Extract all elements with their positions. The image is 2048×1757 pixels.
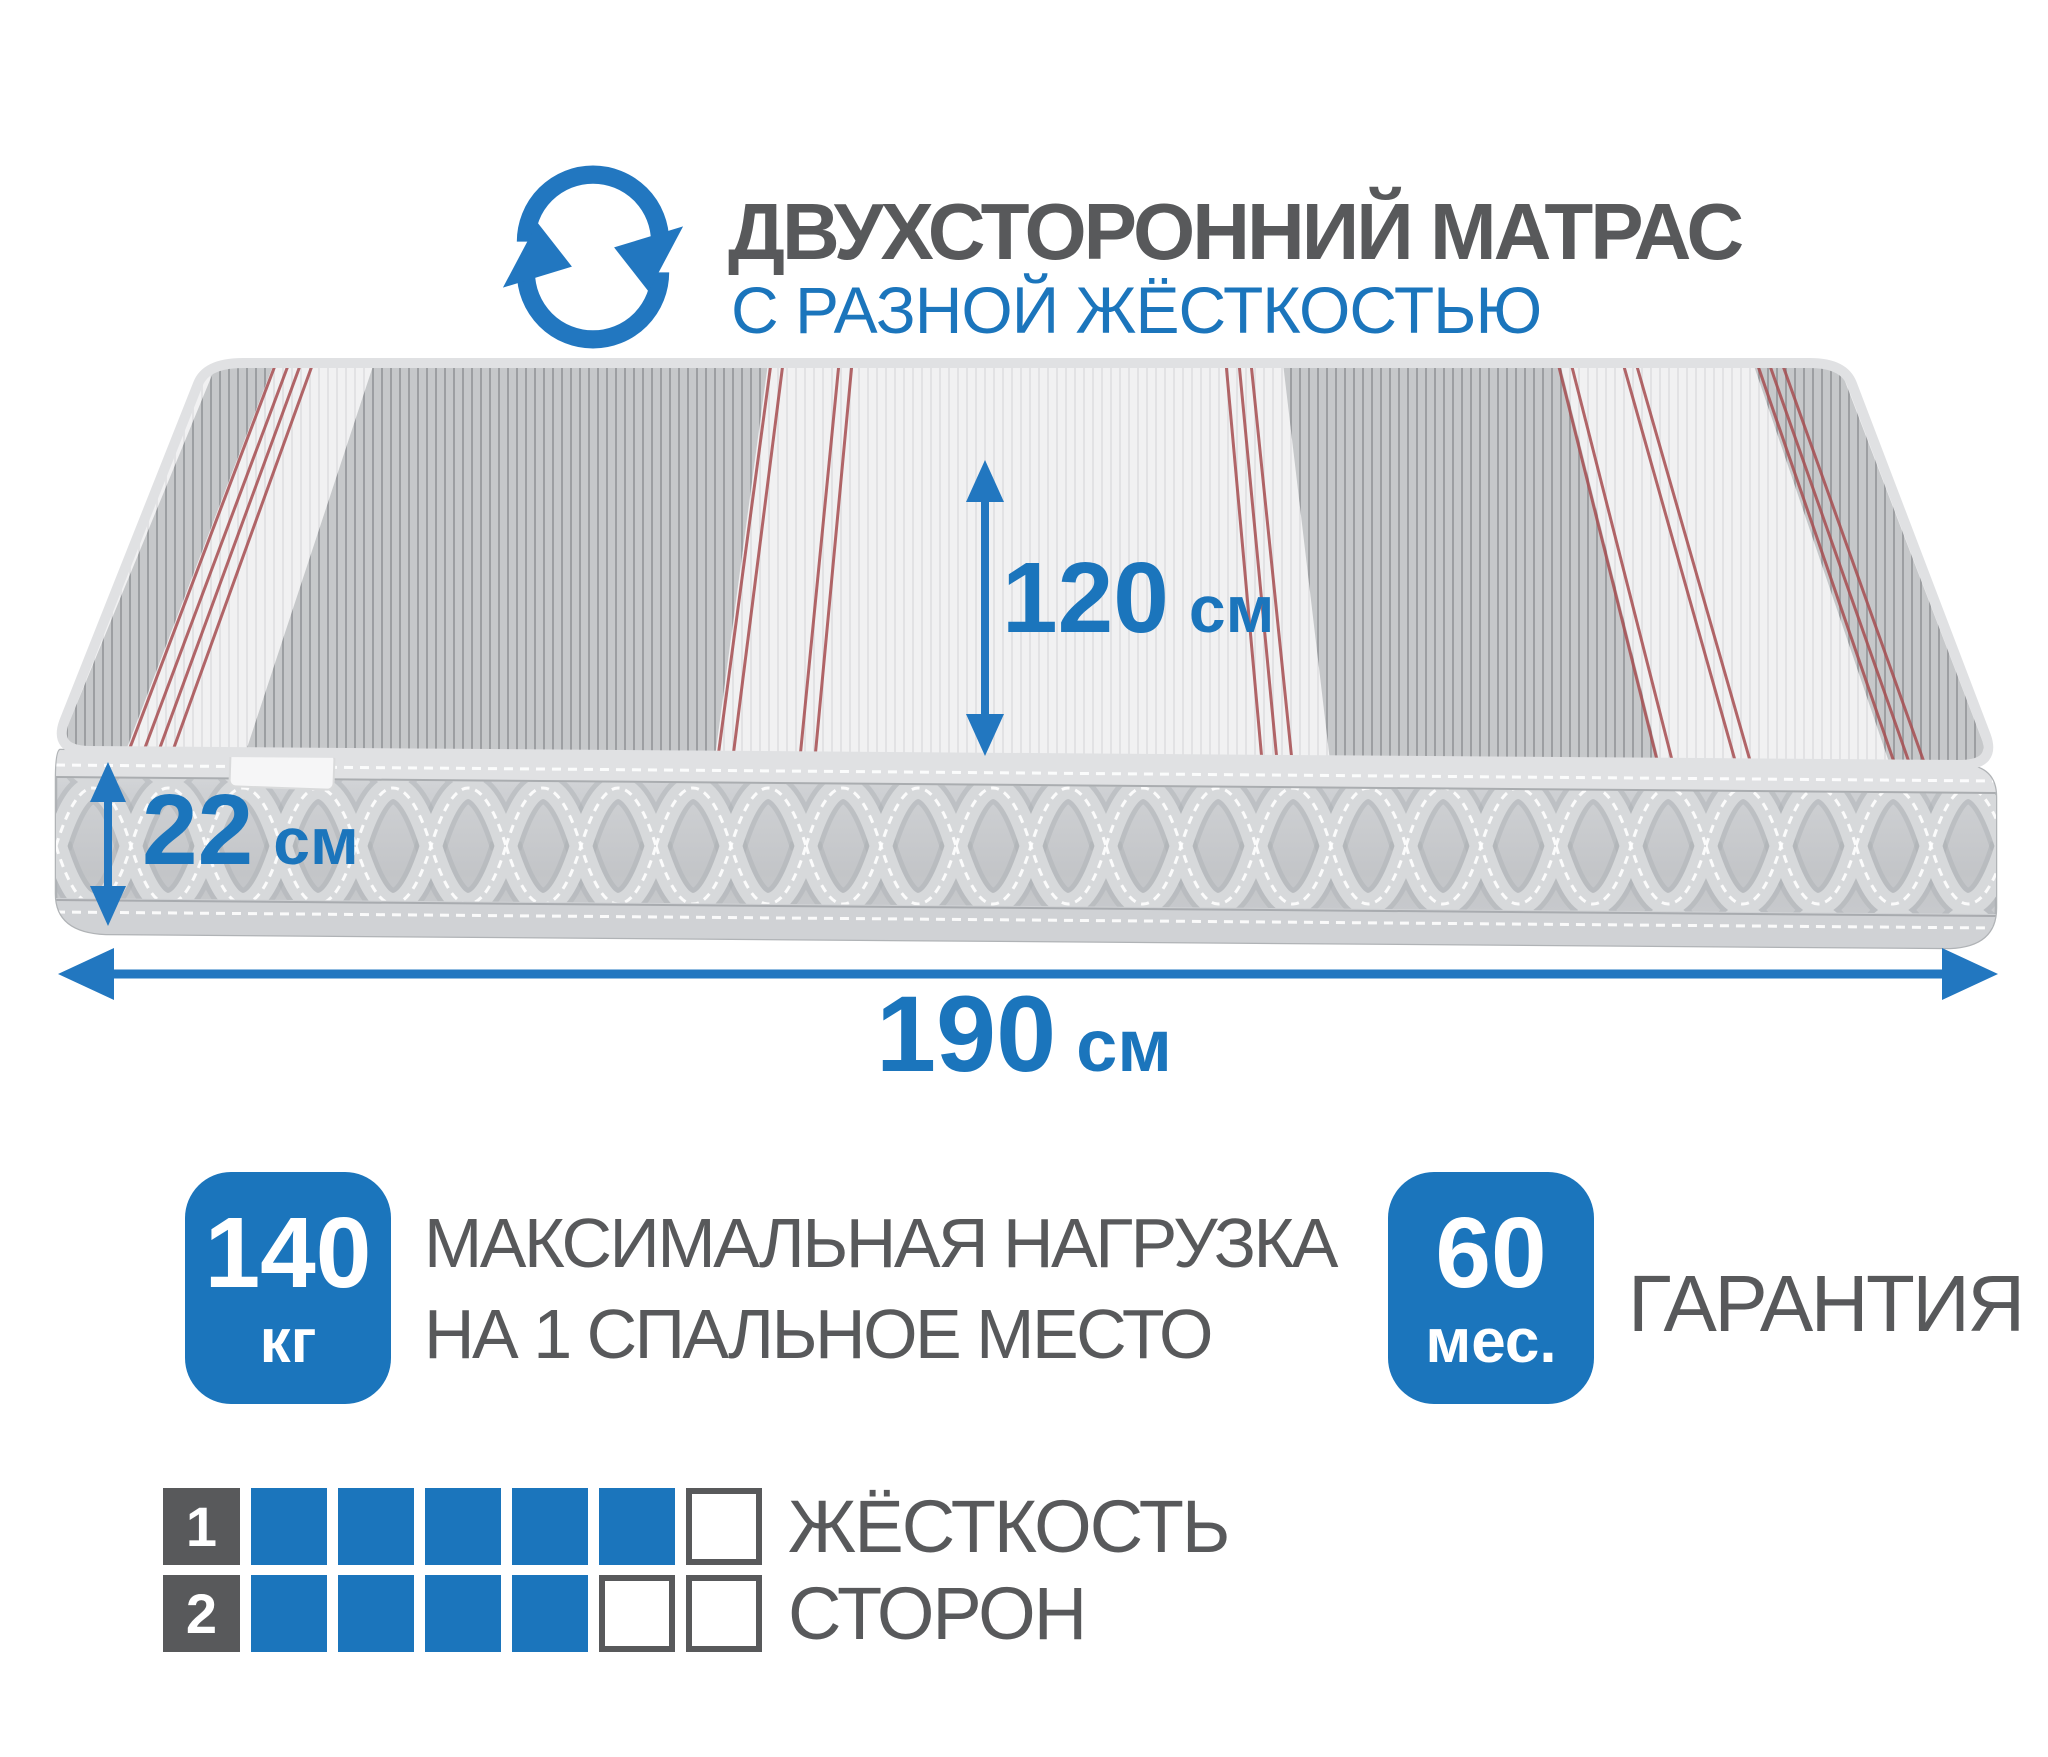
max-load-label: МАКСИМАЛЬНАЯ НАГРУЗКА НА 1 СПАЛЬНОЕ МЕСТ… <box>424 1198 1336 1380</box>
max-load-label-line2: НА 1 СПАЛЬНОЕ МЕСТО <box>424 1289 1336 1380</box>
max-load-label-line1: МАКСИМАЛЬНАЯ НАГРУЗКА <box>424 1198 1336 1289</box>
warranty-label: ГАРАНТИЯ <box>1628 1252 2023 1356</box>
height-dimension-arrow <box>90 762 126 926</box>
hardness-square-filled <box>425 1488 501 1565</box>
rotate-arrows-icon <box>478 142 708 372</box>
hardness-row-2-index: 2 <box>163 1575 240 1652</box>
hardness-square-filled <box>599 1488 675 1565</box>
length-dimension-label: 190 см <box>0 980 2048 1088</box>
warranty-unit: мес. <box>1425 1311 1556 1373</box>
warranty-value: 60 <box>1435 1203 1546 1303</box>
hardness-square-filled <box>251 1488 327 1565</box>
max-load-badge: 140 кг <box>185 1172 391 1404</box>
height-dimension-label: 22 см <box>142 780 359 880</box>
hardness-label-line1: ЖЁСТКОСТЬ <box>788 1484 1229 1569</box>
hardness-square-filled <box>338 1488 414 1565</box>
hardness-square-empty <box>686 1488 762 1565</box>
warranty-badge: 60 мес. <box>1388 1172 1594 1404</box>
hardness-square-filled <box>251 1575 327 1652</box>
hardness-square-filled <box>512 1488 588 1565</box>
width-dimension-label: 120 см <box>1002 548 1274 648</box>
length-unit: см <box>1076 1009 1172 1083</box>
hardness-square-filled <box>512 1575 588 1652</box>
page-subtitle: С РАЗНОЙ ЖЁСТКОСТЬЮ <box>731 272 1541 348</box>
hardness-row-1: 1 ЖЁСТКОСТЬ <box>163 1484 1229 1569</box>
hardness-square-filled <box>338 1575 414 1652</box>
width-dimension-arrow <box>966 460 1004 756</box>
hardness-square-filled <box>425 1575 501 1652</box>
hardness-label-line2: СТОРОН <box>788 1571 1085 1656</box>
width-value: 120 <box>1002 548 1169 648</box>
height-value: 22 <box>142 780 253 880</box>
max-load-value: 140 <box>205 1203 372 1303</box>
max-load-unit: кг <box>260 1311 317 1373</box>
mattress-infographic: ДВУХСТОРОННИЙ МАТРАС С РАЗНОЙ ЖЁСТКОСТЬЮ <box>0 0 2048 1757</box>
hardness-row-2: 2 СТОРОН <box>163 1571 1085 1656</box>
hardness-row-2-squares <box>251 1575 762 1652</box>
length-value: 190 <box>876 980 1056 1088</box>
page-title: ДВУХСТОРОННИЙ МАТРАС <box>728 186 1741 278</box>
hardness-row-1-index: 1 <box>163 1488 240 1565</box>
hardness-row-1-squares <box>251 1488 762 1565</box>
width-unit: см <box>1189 576 1275 642</box>
height-unit: см <box>273 808 359 874</box>
hardness-square-empty <box>686 1575 762 1652</box>
hardness-square-empty <box>599 1575 675 1652</box>
